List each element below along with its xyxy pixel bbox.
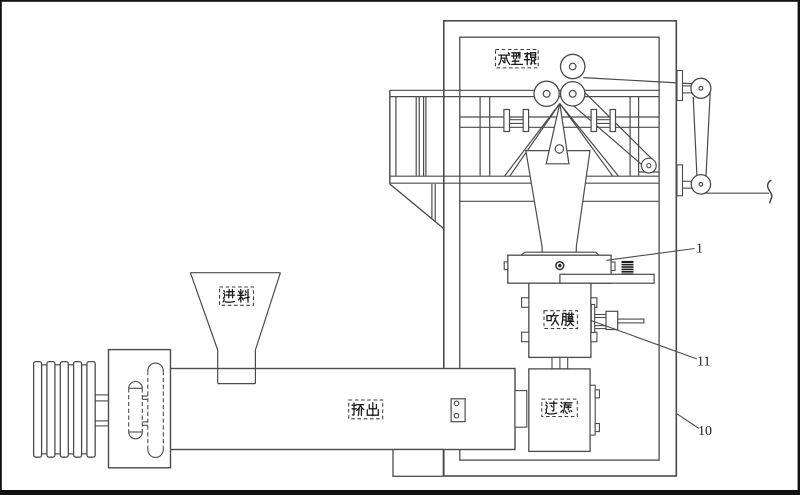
svg-text:11: 11 [697,355,710,370]
svg-text:1: 1 [696,242,703,257]
svg-text:10: 10 [698,424,712,439]
